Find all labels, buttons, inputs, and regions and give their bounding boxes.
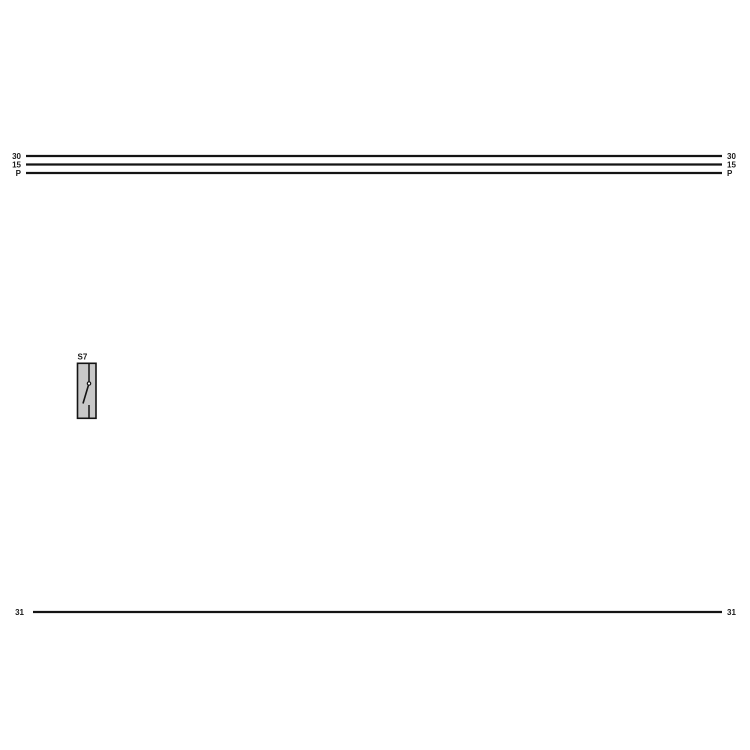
current-flow-diagram: 30301515PP3131S7	[0, 0, 750, 750]
bus-label-P-left: P	[16, 169, 22, 178]
bus-label-P-right: P	[727, 169, 733, 178]
wiring-diagram-page: 30301515PP3131S7	[0, 0, 750, 750]
S7-pivot	[87, 382, 90, 385]
bus-label-31-right: 31	[727, 608, 736, 617]
bus-label-31-left: 31	[15, 608, 24, 617]
S7-name: S7	[78, 353, 88, 362]
